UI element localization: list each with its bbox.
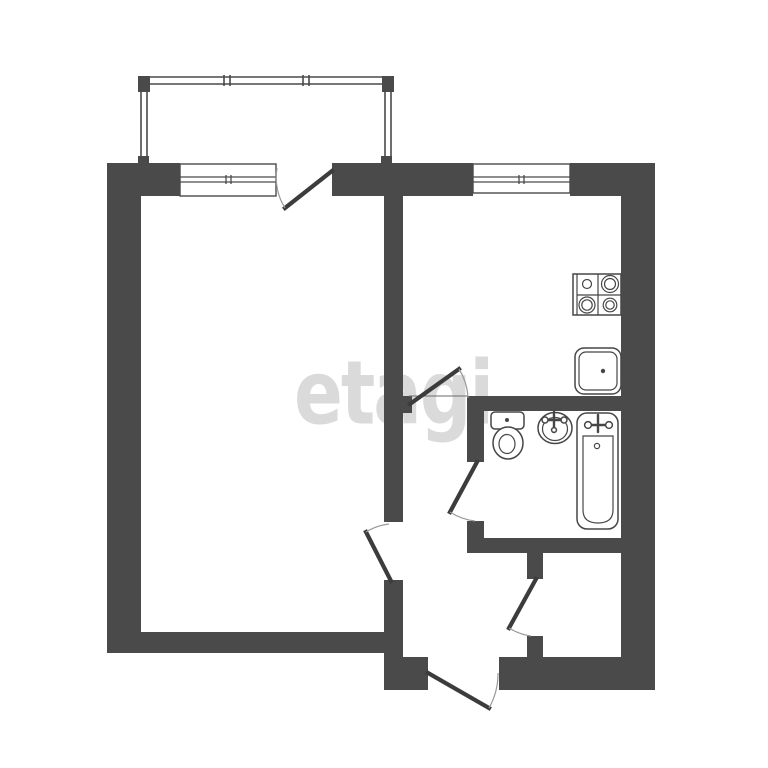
bathroom-door-leaf: [450, 462, 477, 512]
entrance-door-swing-arc: [489, 673, 498, 708]
living-room-window: [180, 164, 276, 196]
living-room-door-leaf: [366, 532, 391, 581]
kitchen-door-swing-arc: [459, 369, 468, 398]
wall-bathroom-top: [467, 396, 621, 411]
balcony-corner-post-right: [382, 76, 394, 92]
floor-plan-drawing: [0, 0, 768, 768]
walls: [107, 163, 655, 690]
closet-door-leaf: [509, 579, 536, 628]
bathroom-door: [450, 462, 477, 521]
living-room-door: [366, 524, 391, 581]
closet-door: [509, 579, 536, 636]
wall-bottom-entry-right: [499, 657, 655, 690]
wall-partition-upper: [384, 196, 403, 522]
wall-bottom-living-room: [107, 632, 386, 653]
kitchen-sink: [575, 348, 621, 394]
bathroom-door-swing-arc: [450, 512, 475, 521]
closet-door-swing-arc: [509, 628, 531, 636]
entrance-door: [428, 673, 498, 708]
wall-closet-jamb-bottom: [527, 636, 543, 657]
wall-partition-lower: [384, 580, 403, 690]
toilet: [491, 412, 524, 459]
living-room-door-swing-arc: [366, 524, 389, 532]
wall-left-exterior: [107, 163, 141, 653]
washbasin: [538, 412, 572, 444]
kitchen-door: [409, 369, 468, 404]
kitchen-window: [473, 164, 570, 193]
balcony-door-leaf: [285, 171, 332, 208]
entrance-door-leaf: [428, 673, 489, 708]
wall-right-exterior: [621, 163, 655, 690]
kitchen-sink-drain: [601, 369, 605, 373]
kitchen-door-leaf: [410, 369, 459, 404]
toilet-bowl: [493, 427, 523, 459]
balcony-door: [276, 168, 332, 208]
wall-closet-jamb-top: [527, 553, 543, 579]
balcony-corner-post-left: [138, 76, 150, 92]
balcony-door-swing-arc: [276, 168, 285, 208]
bathtub: [577, 413, 618, 529]
stove: [573, 274, 621, 315]
wall-bathroom-bottom: [467, 538, 621, 553]
wall-bathroom-left-upper: [467, 411, 484, 462]
balcony: [138, 75, 394, 165]
wall-top-middle-segment: [332, 163, 473, 196]
floor-plan-canvas: etagi: [0, 0, 768, 768]
